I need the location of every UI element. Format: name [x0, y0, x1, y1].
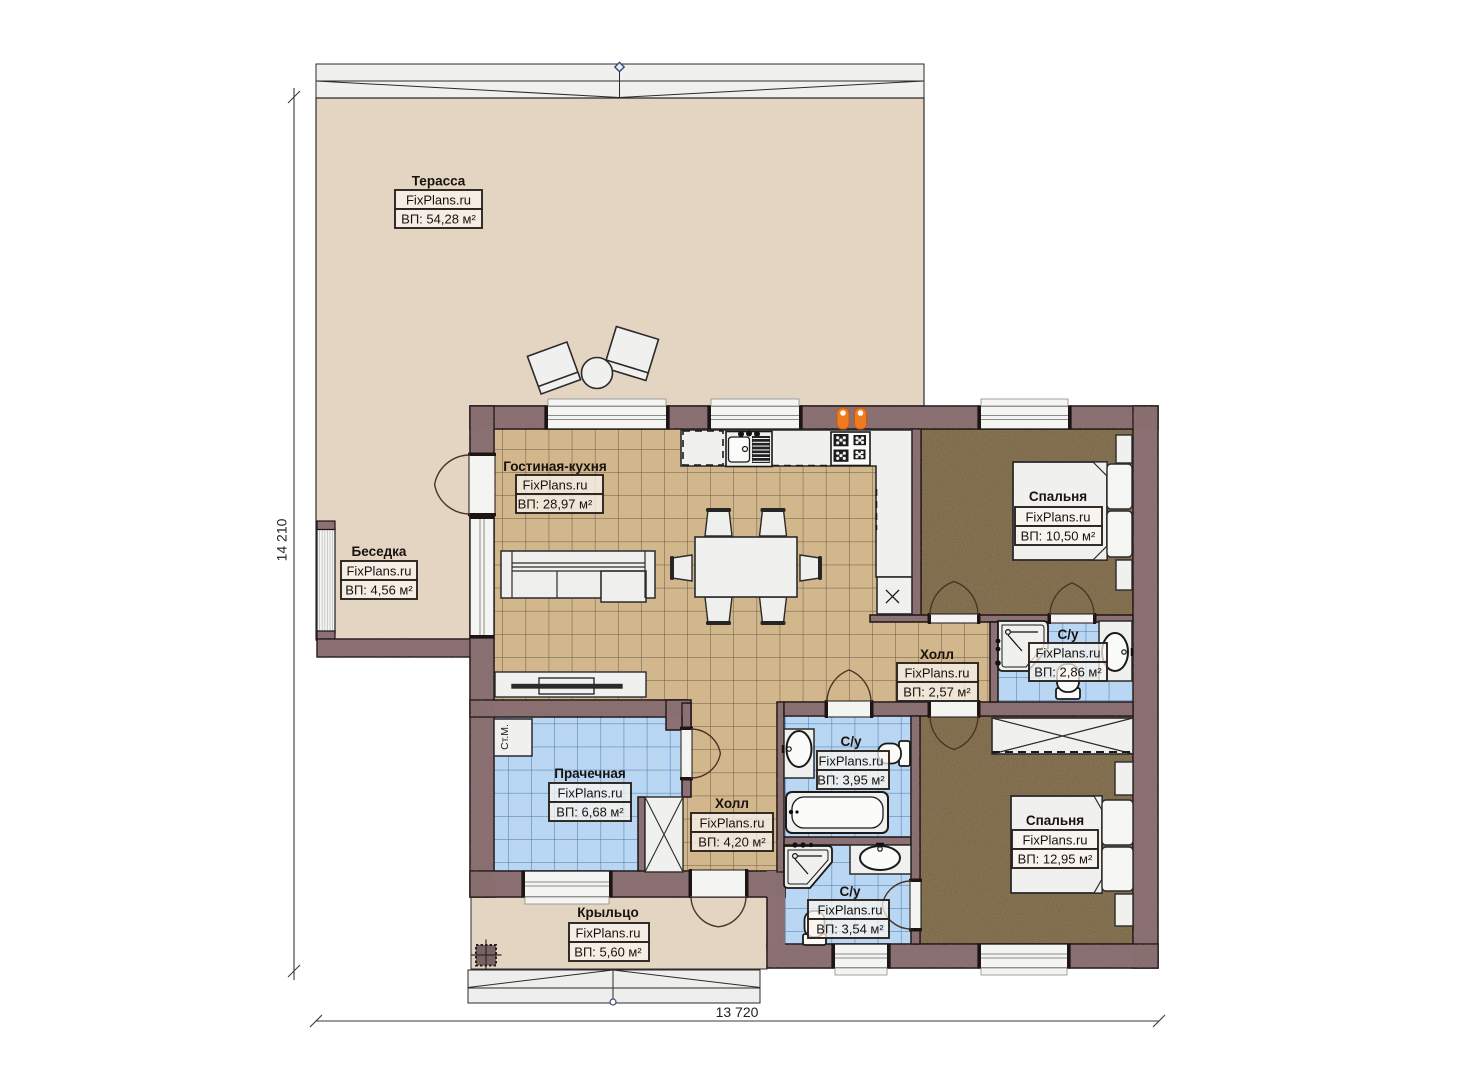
svg-text:Прачечная: Прачечная [554, 766, 626, 781]
svg-text:Ст.М.: Ст.М. [499, 724, 511, 750]
svg-text:ВП: 54,28 м²: ВП: 54,28 м² [401, 212, 476, 227]
svg-text:ВП: 6,68 м²: ВП: 6,68 м² [556, 805, 624, 820]
svg-text:ВП: 28,97 м²: ВП: 28,97 м² [518, 497, 593, 512]
svg-text:FixPlans.ru: FixPlans.ru [406, 193, 471, 208]
svg-text:ВП: 3,54 м²: ВП: 3,54 м² [816, 922, 884, 937]
svg-text:Холл: Холл [715, 796, 749, 811]
svg-text:ВП: 4,56 м²: ВП: 4,56 м² [345, 583, 413, 598]
svg-text:FixPlans.ru: FixPlans.ru [346, 564, 411, 579]
svg-text:С/у: С/у [1057, 627, 1079, 642]
svg-text:FixPlans.ru: FixPlans.ru [817, 903, 882, 918]
svg-text:13 720: 13 720 [716, 1004, 759, 1020]
svg-text:Спальня: Спальня [1029, 489, 1087, 504]
svg-text:Холл: Холл [920, 647, 954, 662]
svg-text:ВП: 5,60 м²: ВП: 5,60 м² [574, 945, 642, 960]
svg-text:FixPlans.ru: FixPlans.ru [1025, 510, 1090, 525]
svg-text:14 210: 14 210 [274, 518, 290, 561]
svg-text:ВП: 2,86 м²: ВП: 2,86 м² [1034, 665, 1102, 680]
svg-text:Беседка: Беседка [352, 544, 407, 559]
svg-text:Спальня: Спальня [1026, 813, 1084, 828]
svg-text:Крыльцо: Крыльцо [577, 905, 638, 920]
svg-text:Гостиная-кухня: Гостиная-кухня [503, 459, 606, 474]
svg-text:FixPlans.ru: FixPlans.ru [818, 754, 883, 769]
svg-text:С/у: С/у [839, 884, 861, 899]
svg-text:ВП: 2,57 м²: ВП: 2,57 м² [903, 685, 971, 700]
svg-text:ВП: 12,95 м²: ВП: 12,95 м² [1018, 852, 1093, 867]
svg-text:FixPlans.ru: FixPlans.ru [522, 478, 587, 493]
svg-text:FixPlans.ru: FixPlans.ru [557, 786, 622, 801]
svg-text:ВП: 4,20 м²: ВП: 4,20 м² [698, 835, 766, 850]
svg-text:Терасса: Терасса [412, 174, 466, 189]
svg-text:ВП: 3,95 м²: ВП: 3,95 м² [817, 773, 885, 788]
svg-text:FixPlans.ru: FixPlans.ru [575, 926, 640, 941]
svg-text:FixPlans.ru: FixPlans.ru [904, 666, 969, 681]
svg-text:FixPlans.ru: FixPlans.ru [699, 816, 764, 831]
svg-text:ВП: 10,50 м²: ВП: 10,50 м² [1021, 529, 1096, 544]
svg-text:С/у: С/у [840, 734, 862, 749]
svg-text:FixPlans.ru: FixPlans.ru [1035, 646, 1100, 661]
svg-text:FixPlans.ru: FixPlans.ru [1022, 833, 1087, 848]
